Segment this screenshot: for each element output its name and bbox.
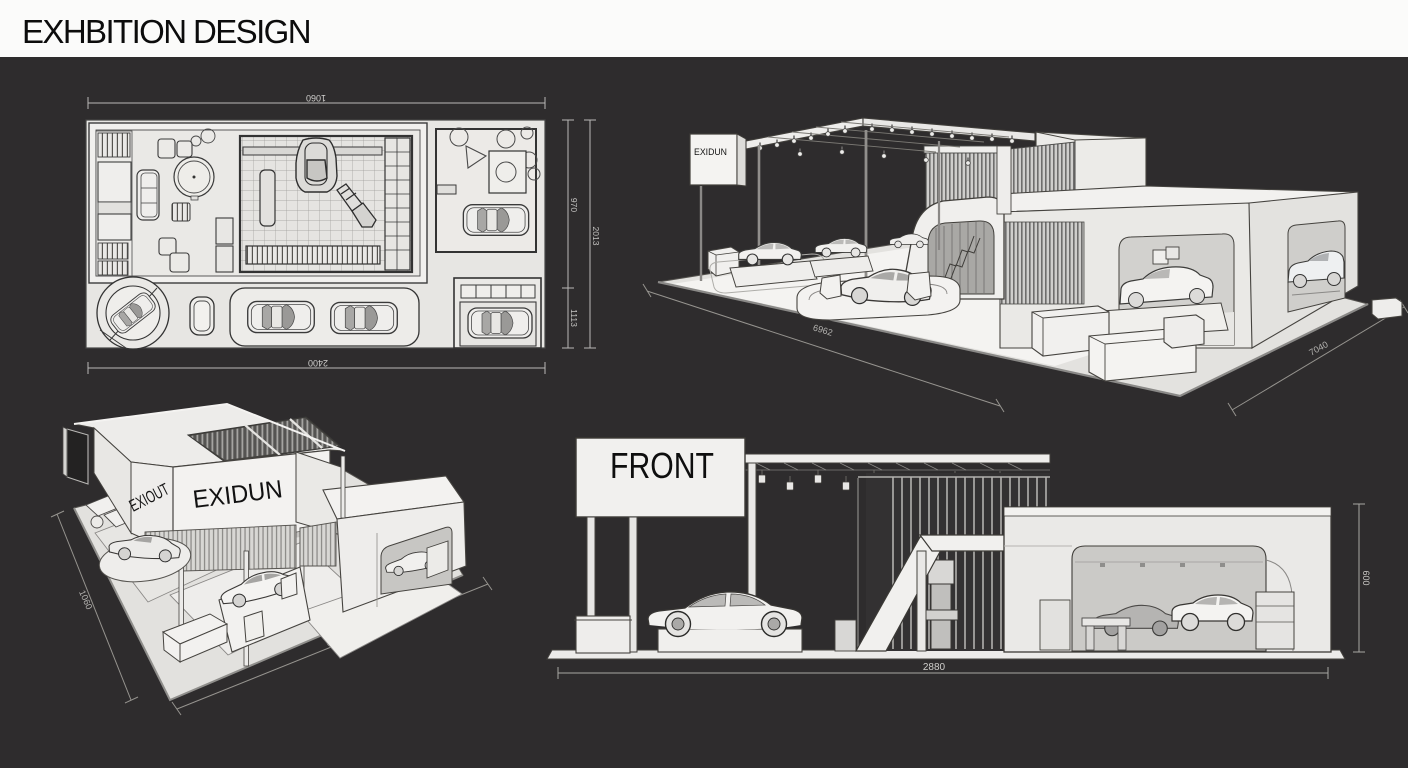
svg-text:1060: 1060 — [77, 589, 94, 611]
svg-text:EXIDUN: EXIDUN — [694, 147, 727, 158]
svg-text:7040: 7040 — [1307, 339, 1329, 357]
svg-text:600: 600 — [1361, 570, 1371, 585]
svg-text:1060: 1060 — [306, 93, 326, 103]
svg-text:2880: 2880 — [923, 662, 946, 673]
svg-text:6962: 6962 — [812, 322, 834, 337]
svg-text:2400: 2400 — [308, 358, 328, 368]
svg-text:FRONT: FRONT — [610, 445, 714, 486]
svg-text:1113: 1113 — [569, 309, 579, 327]
svg-text:970: 970 — [569, 198, 579, 212]
svg-text:2013: 2013 — [591, 227, 601, 246]
